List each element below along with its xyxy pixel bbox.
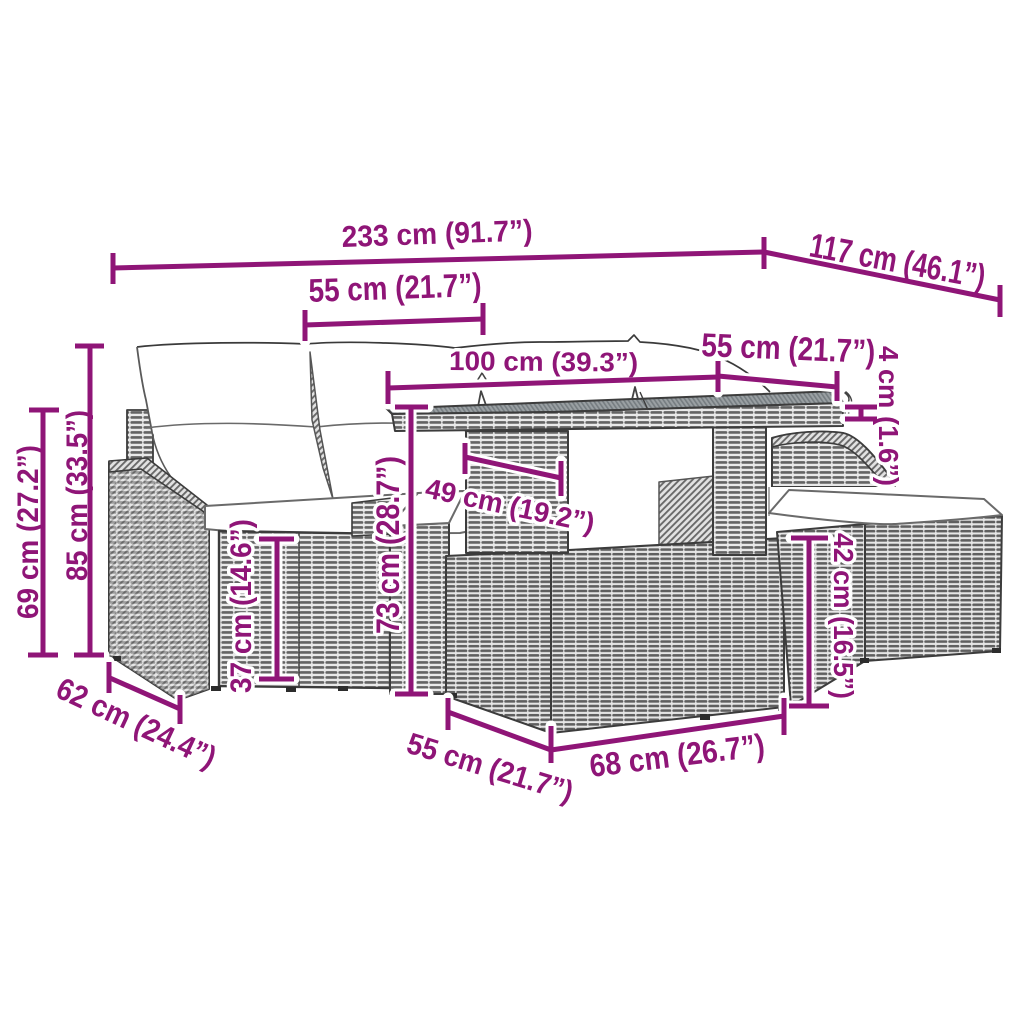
svg-text:73 cm (28.7”): 73 cm (28.7”) xyxy=(370,456,406,634)
svg-text:4 cm (1.6”): 4 cm (1.6”) xyxy=(873,346,904,486)
svg-text:42 cm (16.5”): 42 cm (16.5”) xyxy=(828,533,859,699)
svg-text:55 cm (21.7”): 55 cm (21.7”) xyxy=(308,266,482,309)
svg-text:55 cm (21.7”): 55 cm (21.7”) xyxy=(701,326,876,370)
svg-text:233 cm (91.7”): 233 cm (91.7”) xyxy=(341,214,533,254)
svg-text:100 cm (39.3”): 100 cm (39.3”) xyxy=(449,346,638,378)
svg-text:37 cm (14.6”): 37 cm (14.6”) xyxy=(225,519,258,693)
svg-text:69 cm (27.2”): 69 cm (27.2”) xyxy=(12,445,45,619)
